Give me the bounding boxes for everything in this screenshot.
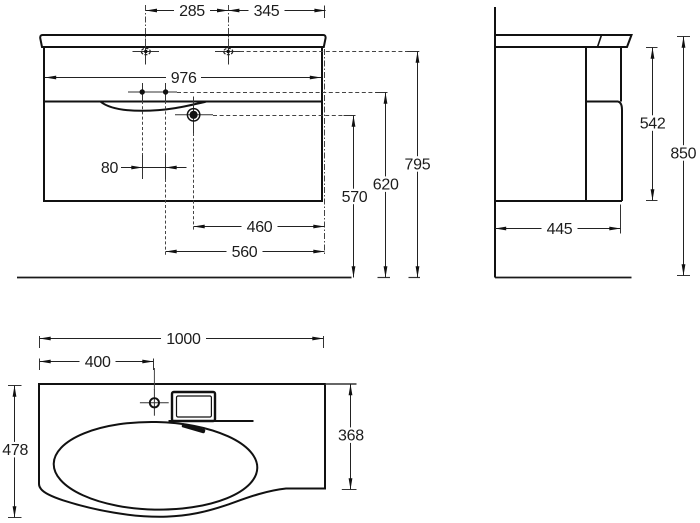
svg-text:850: 850 [670,146,696,163]
svg-text:570: 570 [342,189,368,206]
svg-text:795: 795 [405,157,431,174]
svg-text:1000: 1000 [166,331,201,348]
svg-text:345: 345 [254,3,280,20]
svg-text:560: 560 [232,244,258,261]
svg-text:976: 976 [171,70,197,87]
svg-text:445: 445 [547,221,573,238]
svg-text:80: 80 [101,160,119,177]
svg-text:620: 620 [373,177,399,194]
svg-text:542: 542 [640,116,666,133]
svg-text:285: 285 [179,3,205,20]
svg-text:478: 478 [2,442,28,459]
svg-text:400: 400 [85,354,111,371]
svg-text:368: 368 [338,428,364,445]
svg-text:460: 460 [247,219,273,236]
